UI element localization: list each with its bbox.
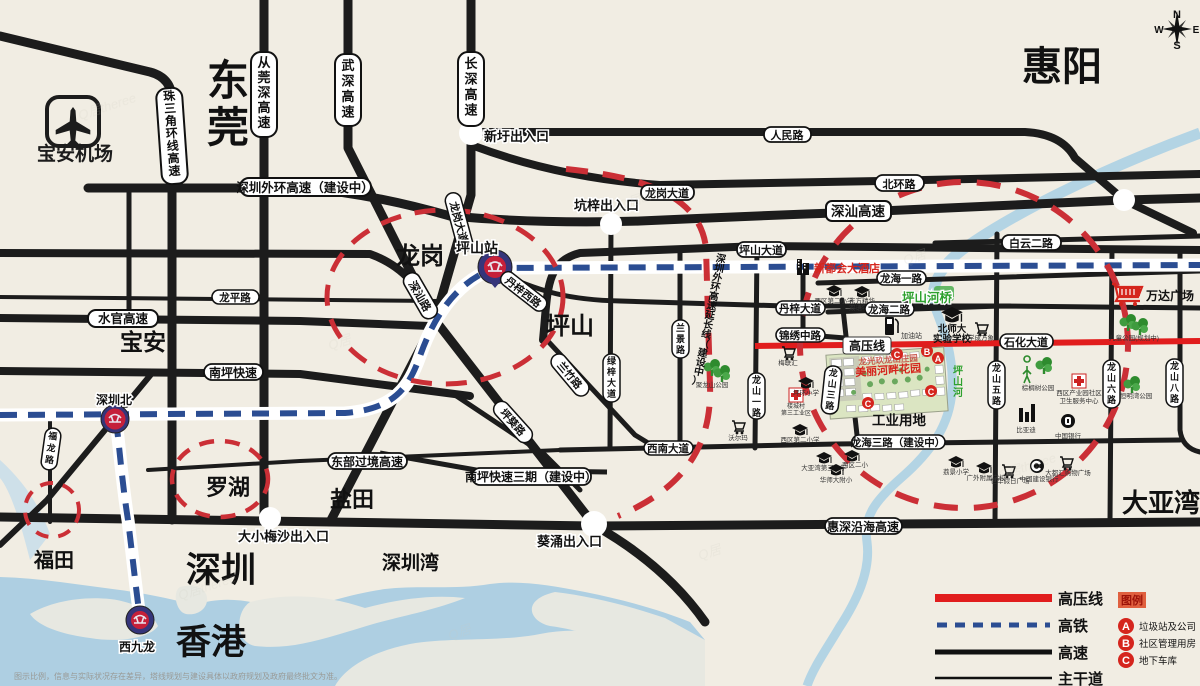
svg-text:梅联汇: 梅联汇 — [778, 358, 798, 367]
svg-text:龙海一路: 龙海一路 — [879, 272, 922, 285]
svg-text:深圳北: 深圳北 — [96, 392, 132, 407]
svg-text:丹梓大道: 丹梓大道 — [779, 302, 821, 315]
svg-text:华师大附小: 华师大附小 — [820, 475, 853, 484]
svg-text:深汕高速: 深汕高速 — [831, 203, 885, 219]
svg-text:楼城村: 楼城村 — [787, 402, 805, 410]
svg-text:工业用地: 工业用地 — [872, 412, 926, 428]
svg-text:卫生服务中心: 卫生服务中心 — [1060, 396, 1100, 405]
svg-text:儿童公园(规划中): 儿童公园(规划中) — [1109, 333, 1159, 342]
svg-text:坪环小学: 坪环小学 — [793, 388, 820, 397]
svg-text:葵涌出入口: 葵涌出入口 — [537, 534, 602, 549]
svg-text:学成万象: 学成万象 — [968, 333, 995, 342]
svg-text:高铁: 高铁 — [1058, 617, 1088, 635]
svg-text:大亚湾: 大亚湾 — [1122, 488, 1200, 518]
svg-text:高速: 高速 — [1058, 644, 1088, 662]
svg-text:东部过境高速: 东部过境高速 — [331, 454, 403, 469]
svg-text:从莞深高速: 从莞深高速 — [257, 55, 270, 130]
svg-text:主干道: 主干道 — [1058, 670, 1103, 686]
svg-text:盐田: 盐田 — [330, 487, 374, 512]
svg-text:坪山站: 坪山站 — [456, 240, 498, 256]
svg-text:西区二小: 西区二小 — [842, 460, 869, 469]
svg-text:C: C — [865, 399, 872, 409]
svg-text:C: C — [894, 350, 901, 360]
svg-text:西区产业园社区: 西区产业园社区 — [1056, 388, 1102, 397]
svg-text:南坪快速: 南坪快速 — [209, 365, 257, 380]
svg-text:龙平路: 龙平路 — [218, 291, 251, 304]
svg-text:加油站: 加油站 — [901, 331, 922, 340]
svg-text:E: E — [1193, 25, 1200, 36]
svg-text:新圩出入口: 新圩出入口 — [484, 129, 549, 144]
svg-text:W: W — [1154, 25, 1164, 36]
svg-text:深圳湾: 深圳湾 — [382, 551, 439, 574]
svg-text:武深高速: 武深高速 — [341, 58, 354, 120]
svg-text:A: A — [1122, 621, 1130, 633]
svg-text:长深高速: 长深高速 — [464, 56, 478, 118]
svg-text:福田: 福田 — [33, 549, 74, 572]
svg-text:西南大道: 西南大道 — [647, 442, 689, 455]
svg-text:南坪快速三期（建设中）: 南坪快速三期（建设中） — [465, 469, 597, 484]
svg-text:C: C — [928, 387, 935, 397]
svg-text:大都汇购物广场: 大都汇购物广场 — [1045, 468, 1091, 477]
svg-text:坪山河: 坪山河 — [953, 364, 963, 399]
svg-text:惠深沿海高速: 惠深沿海高速 — [827, 519, 899, 534]
svg-text:B: B — [1122, 638, 1130, 650]
svg-text:沃尔玛: 沃尔玛 — [728, 433, 748, 442]
svg-text:龙岗: 龙岗 — [396, 243, 444, 270]
svg-text:白云二路: 白云二路 — [1009, 236, 1054, 250]
svg-text:大小梅沙出入口: 大小梅沙出入口 — [238, 529, 329, 544]
svg-text:新都会大酒店: 新都会大酒店 — [814, 261, 880, 275]
svg-text:西区第二小学: 西区第二小学 — [781, 435, 821, 444]
svg-text:深圳外环高速（建设中）: 深圳外环高速（建设中） — [236, 180, 374, 195]
svg-text:高压线: 高压线 — [849, 338, 885, 353]
svg-text:图示比例，信息与实际状况存在差异，塔线规划与建设具体以政府规: 图示比例，信息与实际状况存在差异，塔线规划与建设具体以政府规划及政府最终批文为准… — [14, 671, 342, 681]
svg-text:坪山: 坪山 — [546, 313, 594, 340]
svg-text:C: C — [1122, 655, 1130, 667]
svg-text:实验学校: 实验学校 — [933, 333, 972, 345]
svg-text:中国银行: 中国银行 — [1055, 431, 1082, 440]
svg-text:比亚迪: 比亚迪 — [1016, 425, 1036, 434]
svg-text:北环路: 北环路 — [883, 177, 917, 191]
svg-text:石化大道: 石化大道 — [1003, 335, 1048, 349]
svg-text:万达广场: 万达广场 — [1145, 288, 1194, 303]
svg-text:水官高速: 水官高速 — [98, 311, 149, 326]
svg-text:恒明湾公园: 恒明湾公园 — [1120, 391, 1153, 400]
svg-text:社区管理用房: 社区管理用房 — [1139, 638, 1196, 650]
svg-text:高压线: 高压线 — [1058, 590, 1103, 608]
svg-text:宝安: 宝安 — [120, 329, 166, 355]
svg-text:罗湖: 罗湖 — [206, 475, 250, 500]
svg-text:A: A — [935, 354, 942, 364]
svg-text:坪山大道: 坪山大道 — [739, 243, 783, 257]
svg-text:B: B — [924, 347, 931, 357]
svg-text:棕榈树公园: 棕榈树公园 — [1022, 383, 1055, 392]
svg-text:图例: 图例 — [1121, 593, 1143, 607]
svg-text:宝安机场: 宝安机场 — [37, 142, 113, 165]
svg-text:东莞: 东莞 — [207, 57, 249, 151]
svg-text:锦绣中路: 锦绣中路 — [779, 329, 821, 342]
svg-text:坪山河桥: 坪山河桥 — [902, 290, 953, 305]
svg-text:香港: 香港 — [176, 623, 247, 662]
svg-text:惠阳: 惠阳 — [1022, 45, 1102, 89]
svg-text:龙海三路（建设中）: 龙海三路（建设中） — [850, 436, 946, 449]
svg-text:垃圾站及公司: 垃圾站及公司 — [1139, 621, 1196, 633]
svg-text:地下车库: 地下车库 — [1139, 655, 1178, 667]
svg-text:第三工业区: 第三工业区 — [781, 409, 811, 417]
svg-text:西九龙: 西九龙 — [119, 639, 155, 654]
svg-text:兰景路: 兰景路 — [676, 322, 686, 355]
svg-text:人民路: 人民路 — [771, 128, 805, 142]
